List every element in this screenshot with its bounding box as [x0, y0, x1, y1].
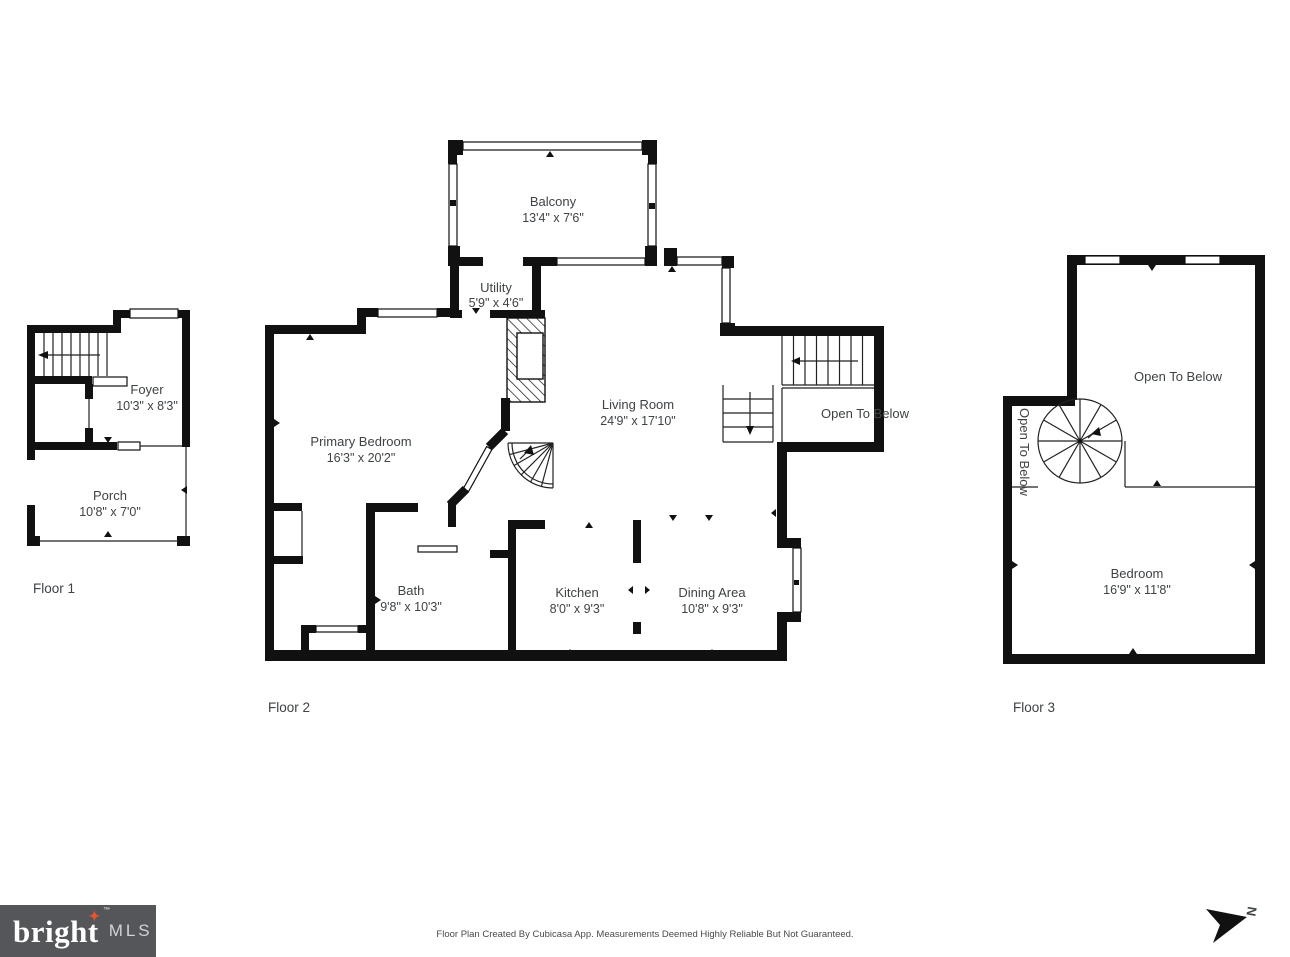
- stair-up-arrow: [791, 357, 858, 365]
- floor1-ticks: [104, 437, 187, 537]
- utility-dims: 5'9" x 4'6": [469, 296, 524, 310]
- curved-stair-arrow: [520, 445, 534, 459]
- foyer-label: Foyer: [130, 382, 164, 397]
- floor2-staircase: [723, 336, 874, 442]
- spiral-staircase: [1038, 399, 1122, 483]
- star-icon: ✦: [88, 909, 100, 923]
- fireplace: [507, 318, 545, 402]
- bedroom-label: Bedroom: [1111, 566, 1164, 581]
- disclaimer-text: Floor Plan Created By Cubicasa App. Meas…: [0, 929, 1290, 940]
- dining-area-label: Dining Area: [678, 585, 746, 600]
- primary-bedroom-label: Primary Bedroom: [310, 434, 411, 449]
- floor2-title: Floor 2: [268, 700, 310, 715]
- primary-bedroom-dims: 16'3" x 20'2": [327, 451, 396, 465]
- compass-north-label: N: [1243, 905, 1259, 917]
- curved-staircase: [508, 443, 553, 488]
- floor3-open-to-below-side-label: Open To Below: [1017, 408, 1032, 497]
- kitchen-dims: 8'0" x 9'3": [550, 602, 605, 616]
- trademark-symbol: ™: [103, 907, 111, 914]
- bath-dims: 9'8" x 10'3": [380, 600, 442, 614]
- utility-label: Utility: [480, 280, 512, 295]
- balcony-label: Balcony: [530, 194, 577, 209]
- spiral-stair-arrow: [1088, 427, 1101, 438]
- floor3-open-to-below-label: Open To Below: [1134, 369, 1223, 384]
- living-room-dims: 24'9" x 17'10": [600, 414, 676, 428]
- porch-dims: 10'8" x 7'0": [79, 505, 141, 519]
- open-to-below-label: Open To Below: [821, 406, 910, 421]
- stair-direction-arrow: [38, 351, 100, 359]
- floor1-title: Floor 1: [33, 581, 75, 596]
- kitchen-label: Kitchen: [555, 585, 598, 600]
- living-room-label: Living Room: [602, 397, 674, 412]
- foyer-dims: 10'3" x 8'3": [116, 399, 178, 413]
- floor1-plan: Foyer 10'3" x 8'3" Porch 10'8" x 7'0" Fl…: [27, 309, 190, 596]
- floorplan-canvas: Foyer 10'3" x 8'3" Porch 10'8" x 7'0" Fl…: [0, 0, 1290, 957]
- floor2-plan: Balcony 13'4" x 7'6" Utility 5'9" x 4'6"…: [265, 140, 910, 715]
- bedroom-dims: 16'9" x 11'8": [1103, 583, 1171, 597]
- porch-label: Porch: [93, 488, 127, 503]
- bath-label: Bath: [398, 583, 425, 598]
- floor3-plan: Open To Below Open To Below Bedroom 16'9…: [1003, 255, 1265, 715]
- floor3-title: Floor 3: [1013, 700, 1055, 715]
- dining-area-dims: 10'8" x 9'3": [681, 602, 743, 616]
- floorplan-page: Foyer 10'3" x 8'3" Porch 10'8" x 7'0" Fl…: [0, 0, 1290, 957]
- balcony-dims: 13'4" x 7'6": [522, 211, 584, 225]
